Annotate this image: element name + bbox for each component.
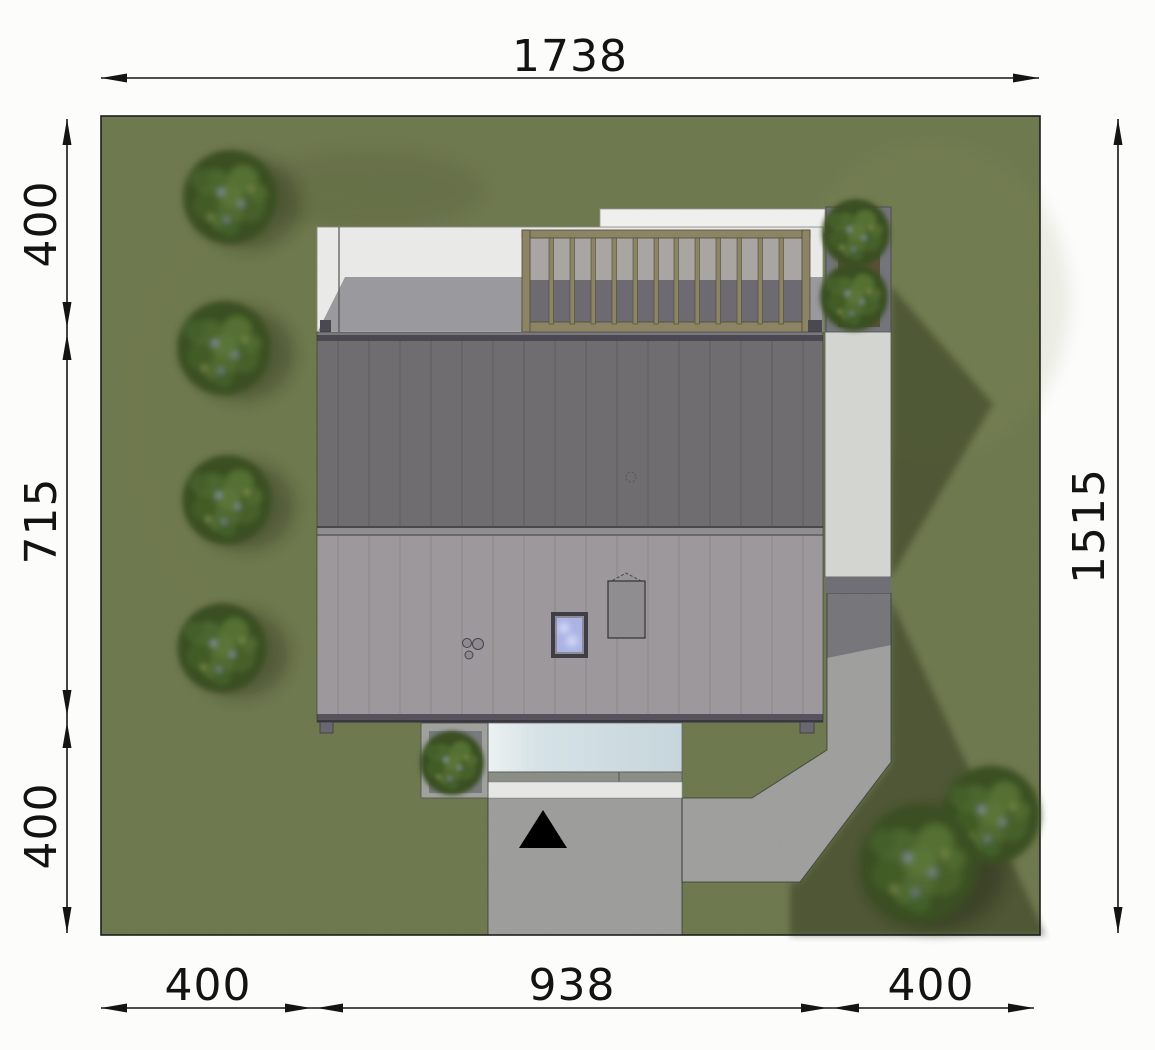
dim-label-bottom-left: 400 (165, 960, 252, 1011)
entrance-tree (420, 731, 484, 795)
tree (860, 805, 978, 923)
site-plan-sheet: 1738 1515 400 715 400 400 938 400 (0, 0, 1155, 1050)
house (317, 207, 891, 798)
east-patio-edge (825, 577, 891, 593)
tree (177, 301, 271, 395)
east-patio (825, 332, 891, 577)
dim-label-left-lower: 400 (16, 783, 67, 870)
tree (183, 150, 277, 244)
roof-eave-top (317, 335, 823, 341)
dim-label-bottom-center: 938 (529, 960, 616, 1011)
site-plan-drawing: 1738 1515 400 715 400 400 938 400 (0, 0, 1155, 1050)
dim-label-left-middle: 715 (16, 478, 67, 565)
dim-label-top: 1738 (512, 31, 628, 82)
entrance-glass-canopy (488, 723, 682, 772)
dim-label-bottom-right: 400 (888, 960, 975, 1011)
pergola (522, 230, 822, 334)
skylight-window (551, 612, 588, 658)
roof-foot-right (800, 722, 814, 733)
chimney (608, 573, 645, 638)
roof-ridge (317, 528, 823, 534)
roof-upper-slope (317, 341, 823, 527)
tree (182, 455, 271, 544)
canopy-beam (488, 772, 682, 782)
dim-label-right: 1515 (1064, 468, 1115, 584)
dim-label-left-upper: 400 (16, 181, 67, 268)
roof (317, 332, 823, 733)
terrace-foot-left (320, 320, 331, 332)
tree (177, 603, 266, 692)
planter-tree (820, 263, 888, 331)
entrance-walk (488, 782, 682, 798)
roof-foot-left (320, 722, 333, 733)
planter-tree (822, 199, 890, 267)
